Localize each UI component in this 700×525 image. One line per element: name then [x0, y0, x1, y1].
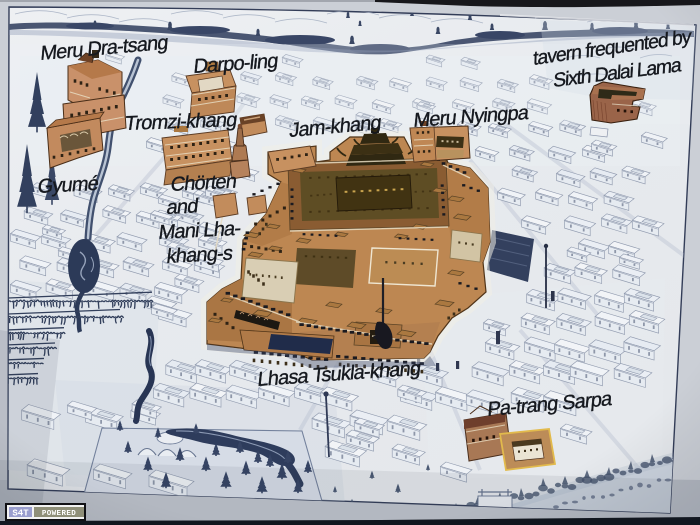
svg-text:S4T: S4T	[12, 509, 29, 519]
svg-text:POWERED: POWERED	[42, 510, 76, 518]
